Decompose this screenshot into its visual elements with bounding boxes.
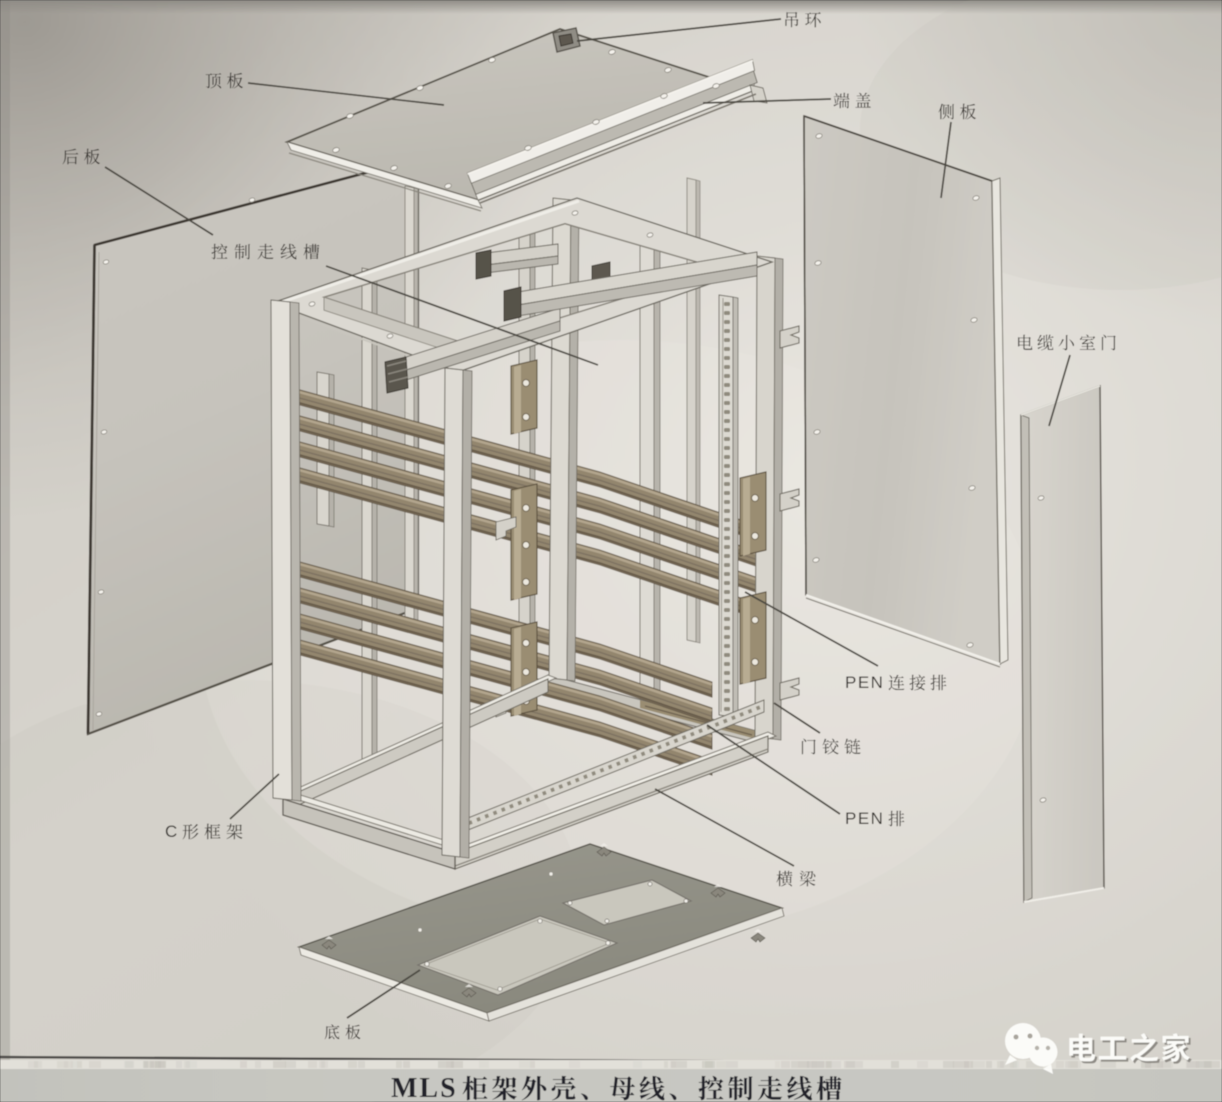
- svg-text:C: C: [165, 822, 177, 841]
- svg-text:PEN: PEN: [845, 809, 884, 828]
- svg-text:MLS: MLS: [391, 1073, 458, 1102]
- svg-text:PEN: PEN: [845, 673, 884, 692]
